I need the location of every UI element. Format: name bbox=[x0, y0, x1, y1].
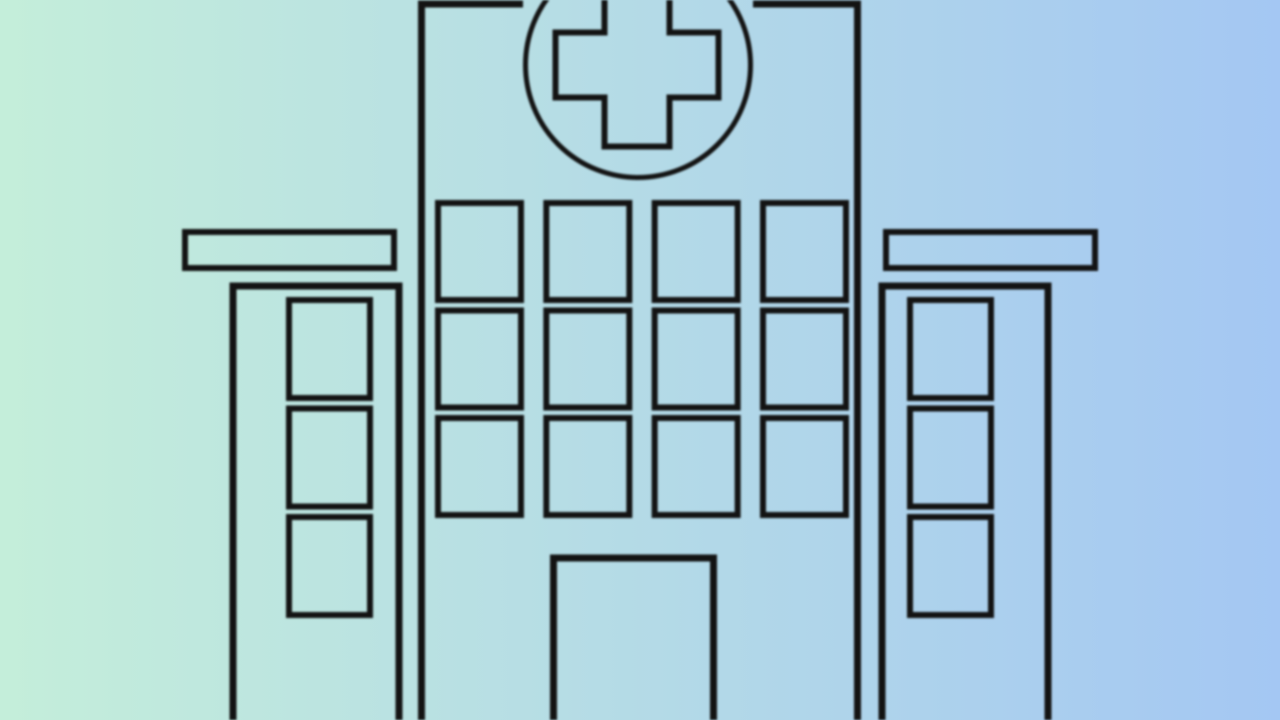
window bbox=[546, 203, 629, 300]
window bbox=[655, 203, 738, 300]
window bbox=[655, 418, 738, 515]
window bbox=[655, 311, 738, 408]
window bbox=[910, 517, 991, 615]
window bbox=[438, 418, 521, 515]
medical-cross-icon bbox=[556, 0, 719, 147]
window bbox=[910, 409, 991, 507]
window bbox=[546, 311, 629, 408]
main-door bbox=[554, 558, 714, 720]
main-tower-windows bbox=[438, 203, 846, 515]
window bbox=[438, 203, 521, 300]
window bbox=[910, 300, 991, 398]
left-wing-outline bbox=[233, 286, 399, 720]
main-tower-outline bbox=[422, 4, 858, 720]
hospital-illustration bbox=[0, 0, 1280, 720]
right-wing-roof bbox=[886, 232, 1095, 268]
window bbox=[289, 300, 370, 398]
left-wing-roof bbox=[185, 232, 394, 268]
window bbox=[289, 517, 370, 615]
window bbox=[438, 311, 521, 408]
right-wing-windows bbox=[910, 300, 991, 615]
window bbox=[289, 409, 370, 507]
window bbox=[763, 311, 846, 408]
window bbox=[546, 418, 629, 515]
hospital-line-art bbox=[0, 0, 1280, 720]
right-wing-outline bbox=[882, 286, 1048, 720]
left-wing-windows bbox=[289, 300, 370, 615]
window bbox=[763, 203, 846, 300]
window bbox=[763, 418, 846, 515]
